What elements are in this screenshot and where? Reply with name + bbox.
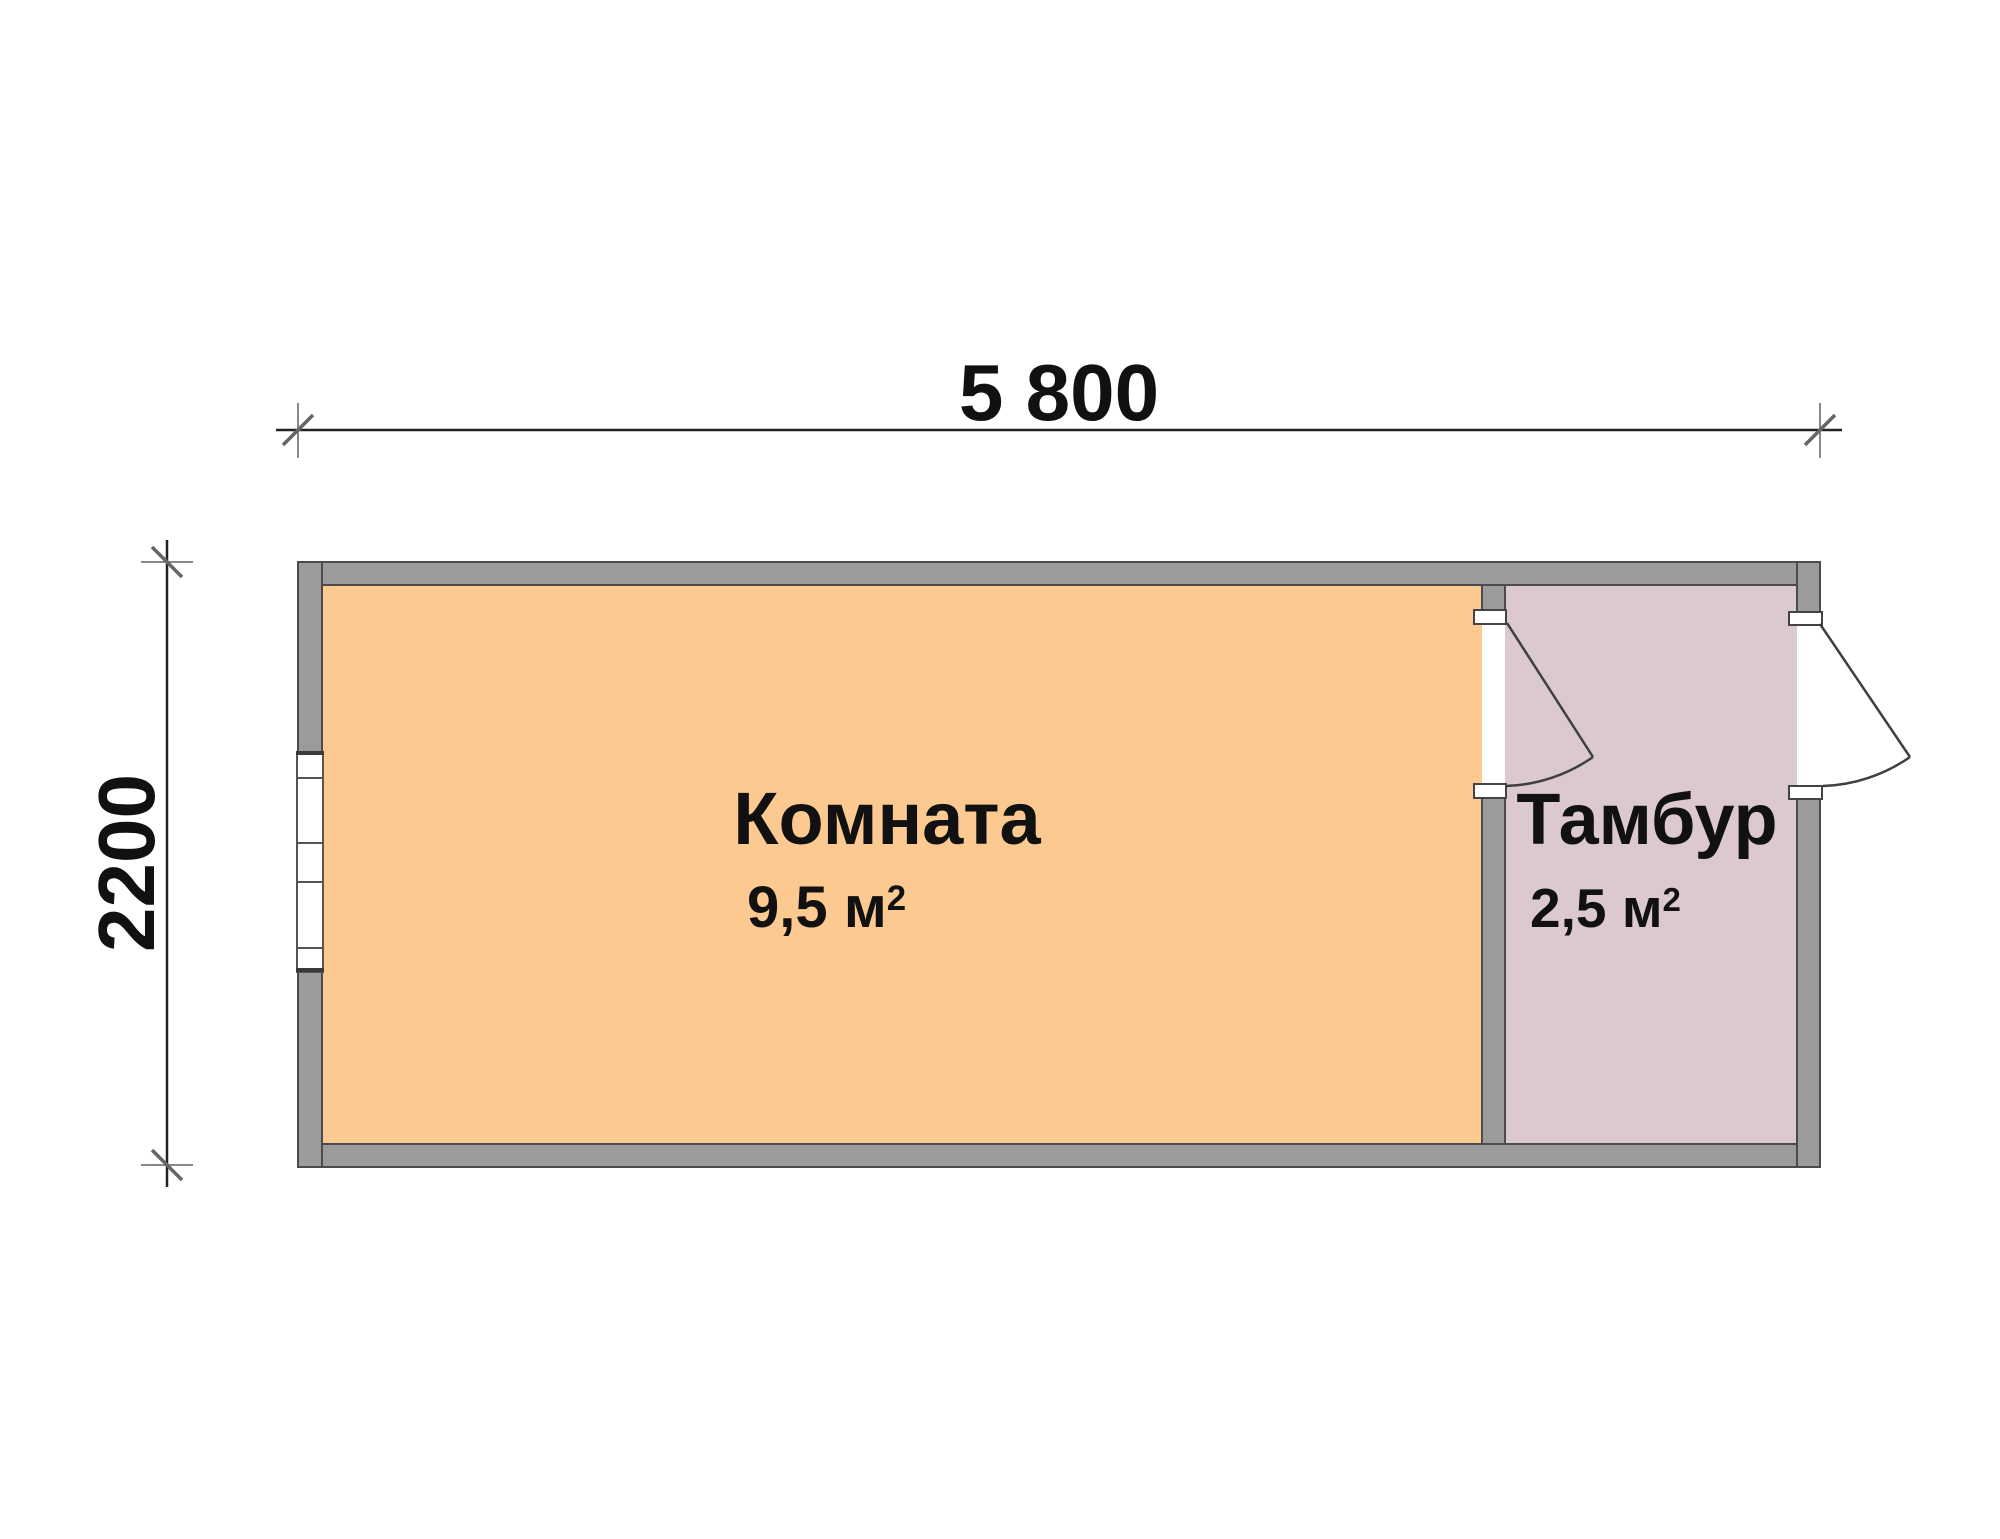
room-area-value: 2,5 (1530, 877, 1606, 939)
room-area-komnata: 9,5м2 (747, 879, 906, 937)
door-jamb (1789, 786, 1822, 799)
room-area-exponent: 2 (1663, 881, 1681, 918)
room-name-tambur: Тамбур (1516, 784, 1777, 856)
floor-plan-page: 5 800 2200 Комната 9,5м2 Тамбур 2,5м2 (0, 0, 2000, 1539)
door-jamb (1474, 784, 1506, 798)
door-exterior-swing (1820, 624, 1910, 786)
room-area-exponent: 2 (887, 879, 906, 918)
floor-plan-drawing (0, 0, 2000, 1539)
door-swing-arc (1823, 757, 1910, 786)
room-area-tambur: 2,5м2 (1530, 881, 1681, 936)
wall-interior-lower (1482, 798, 1505, 1144)
wall-left-upper (298, 562, 322, 753)
wall-right-lower (1797, 798, 1820, 1167)
door-jamb (1789, 612, 1822, 625)
window-frame (297, 752, 323, 972)
room-area-value: 9,5 (747, 875, 828, 940)
door-leaf (1820, 624, 1910, 757)
wall-top (298, 562, 1820, 585)
dimension-height-label: 2200 (87, 774, 167, 952)
wall-right-upper (1797, 562, 1820, 612)
window-symbol (296, 752, 324, 972)
room-name-komnata: Комната (733, 782, 1040, 856)
wall-left-lower (298, 971, 322, 1167)
room-fill-tambur (1505, 585, 1797, 1144)
room-area-unit: м (844, 875, 887, 940)
door-jamb (1474, 610, 1506, 624)
wall-interior-upper (1482, 585, 1505, 611)
dimension-width-label: 5 800 (959, 353, 1159, 433)
room-area-unit: м (1622, 877, 1663, 939)
wall-bottom (298, 1144, 1820, 1167)
room-fill-komnata (322, 585, 1482, 1144)
